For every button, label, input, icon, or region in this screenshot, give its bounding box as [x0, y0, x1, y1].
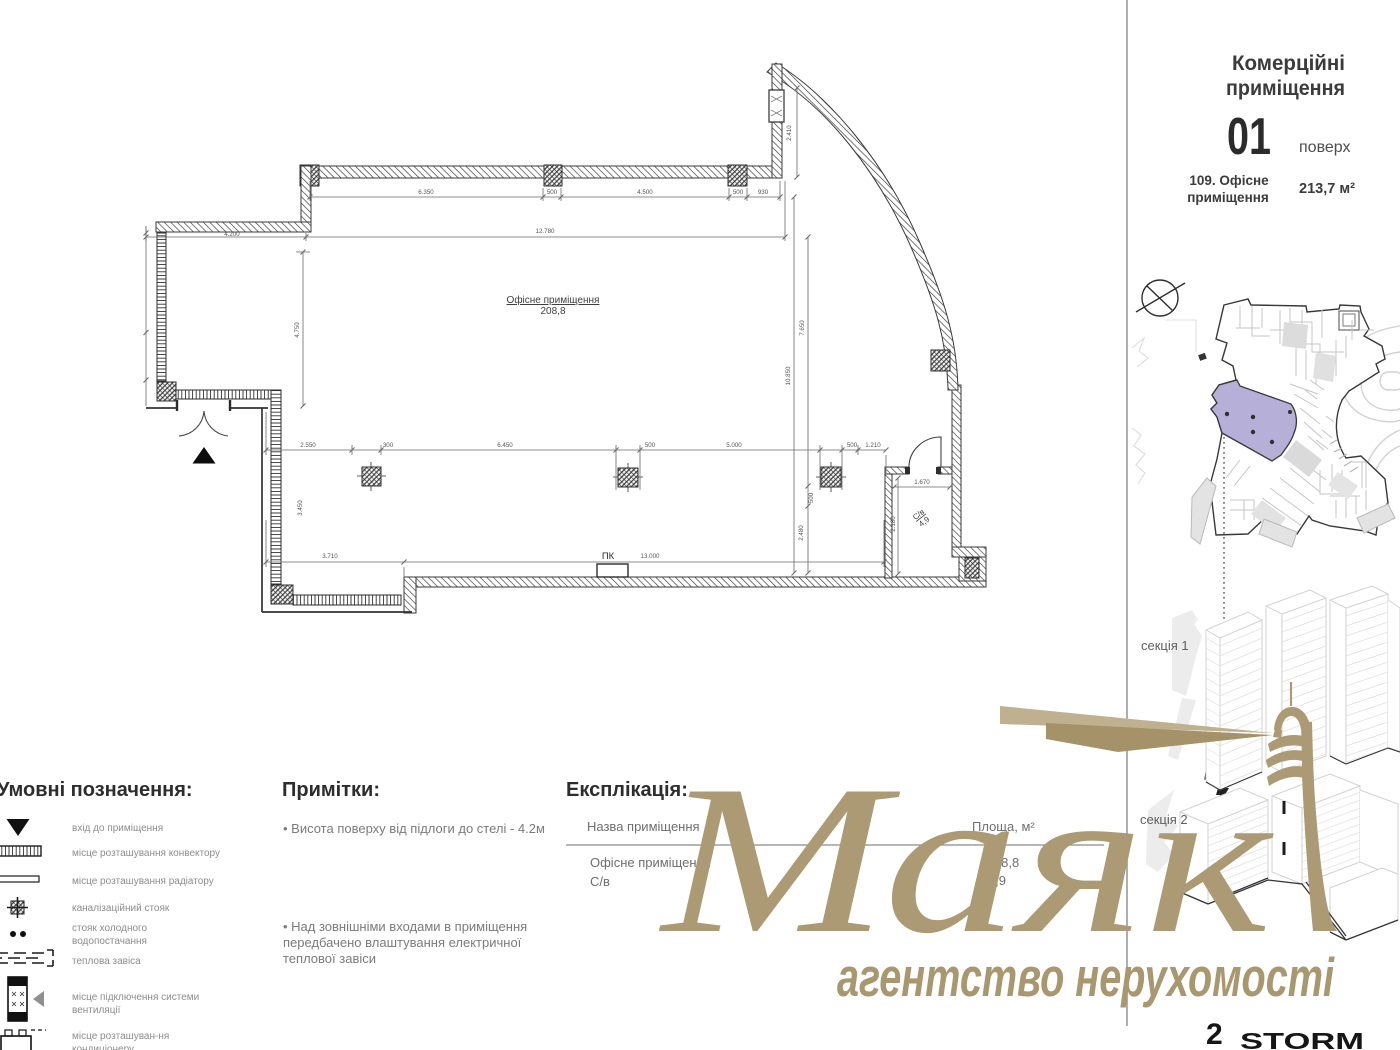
svg-text:2: 2 — [1206, 1018, 1223, 1050]
svg-text:2.180: 2.180 — [890, 516, 897, 532]
svg-text:кондиціонеру: кондиціонеру — [72, 1044, 134, 1050]
svg-text:500: 500 — [645, 442, 656, 449]
svg-text:300: 300 — [383, 442, 394, 449]
svg-text:930: 930 — [758, 189, 769, 196]
svg-text:С/в: С/в — [590, 874, 610, 889]
svg-text:1.670: 1.670 — [914, 479, 930, 486]
svg-text:500: 500 — [808, 492, 815, 503]
svg-text:5.000: 5.000 — [726, 442, 742, 449]
svg-text:STORM: STORM — [1240, 1028, 1364, 1050]
svg-text:вентиляції: вентиляції — [72, 1005, 121, 1016]
svg-text:01: 01 — [1227, 108, 1271, 166]
svg-text:місце розташування конвектору: місце розташування конвектору — [72, 848, 220, 859]
svg-text:агентство нерухомості: агентство нерухомості — [837, 946, 1335, 1008]
svg-text:стояк холодного: стояк холодного — [72, 923, 147, 934]
svg-text:500: 500 — [847, 442, 858, 449]
svg-text:водопостачання: водопостачання — [72, 936, 147, 947]
svg-text:Примітки:: Примітки: — [282, 779, 380, 801]
svg-text:вхід до приміщення: вхід до приміщення — [72, 823, 163, 834]
svg-text:500: 500 — [733, 189, 744, 196]
svg-text:12.780: 12.780 — [536, 228, 555, 235]
svg-text:передбачено влаштування електр: передбачено влаштування електричної — [283, 935, 522, 950]
svg-text:6.350: 6.350 — [418, 189, 434, 196]
svg-text:• Над зовнішніми входами в при: • Над зовнішніми входами в приміщення — [283, 919, 527, 934]
svg-text:7.650: 7.650 — [799, 320, 806, 336]
svg-text:каналізаційний стояк: каналізаційний стояк — [72, 903, 170, 914]
svg-text:3.710: 3.710 — [322, 553, 338, 560]
svg-text:місце розташуван-ня: місце розташуван-ня — [72, 1031, 169, 1042]
svg-text:500: 500 — [547, 189, 558, 196]
svg-text:109. Офісне: 109. Офісне — [1189, 173, 1269, 188]
svg-text:2.550: 2.550 — [300, 442, 316, 449]
svg-text:секція 1: секція 1 — [1141, 638, 1189, 653]
svg-text:теплова завіса: теплова завіса — [72, 956, 141, 967]
svg-text:місце підключення системи: місце підключення системи — [72, 992, 199, 1003]
svg-text:4.750: 4.750 — [294, 322, 301, 338]
svg-text:213,7 м²: 213,7 м² — [1299, 180, 1355, 197]
svg-text:Комерційні: Комерційні — [1232, 51, 1345, 75]
svg-text:поверх: поверх — [1299, 139, 1351, 156]
svg-text:10.850: 10.850 — [785, 366, 792, 385]
svg-text:4.500: 4.500 — [637, 189, 653, 196]
svg-text:2.410: 2.410 — [786, 125, 793, 141]
svg-text:Умовні позначення:: Умовні позначення: — [0, 779, 193, 801]
svg-text:1.210: 1.210 — [865, 442, 881, 449]
svg-text:Офісне приміщення: Офісне приміщення — [507, 294, 600, 306]
svg-text:2.480: 2.480 — [798, 525, 805, 541]
svg-text:• Висота поверху від підлоги д: • Висота поверху від підлоги до стелі - … — [283, 821, 545, 836]
svg-text:Маяк: Маяк — [658, 742, 1274, 978]
svg-text:приміщення: приміщення — [1187, 190, 1269, 205]
svg-text:теплової завіси: теплової завіси — [283, 951, 376, 966]
svg-text:приміщення: приміщення — [1226, 76, 1345, 100]
svg-text:208,8: 208,8 — [540, 306, 565, 317]
svg-text:ПК: ПК — [602, 551, 615, 562]
svg-text:місце розташування радіатору: місце розташування радіатору — [72, 876, 214, 887]
svg-text:4.200: 4.200 — [224, 231, 240, 238]
svg-text:3.450: 3.450 — [297, 500, 304, 516]
svg-text:6.450: 6.450 — [497, 442, 513, 449]
svg-text:13.000: 13.000 — [641, 553, 660, 560]
